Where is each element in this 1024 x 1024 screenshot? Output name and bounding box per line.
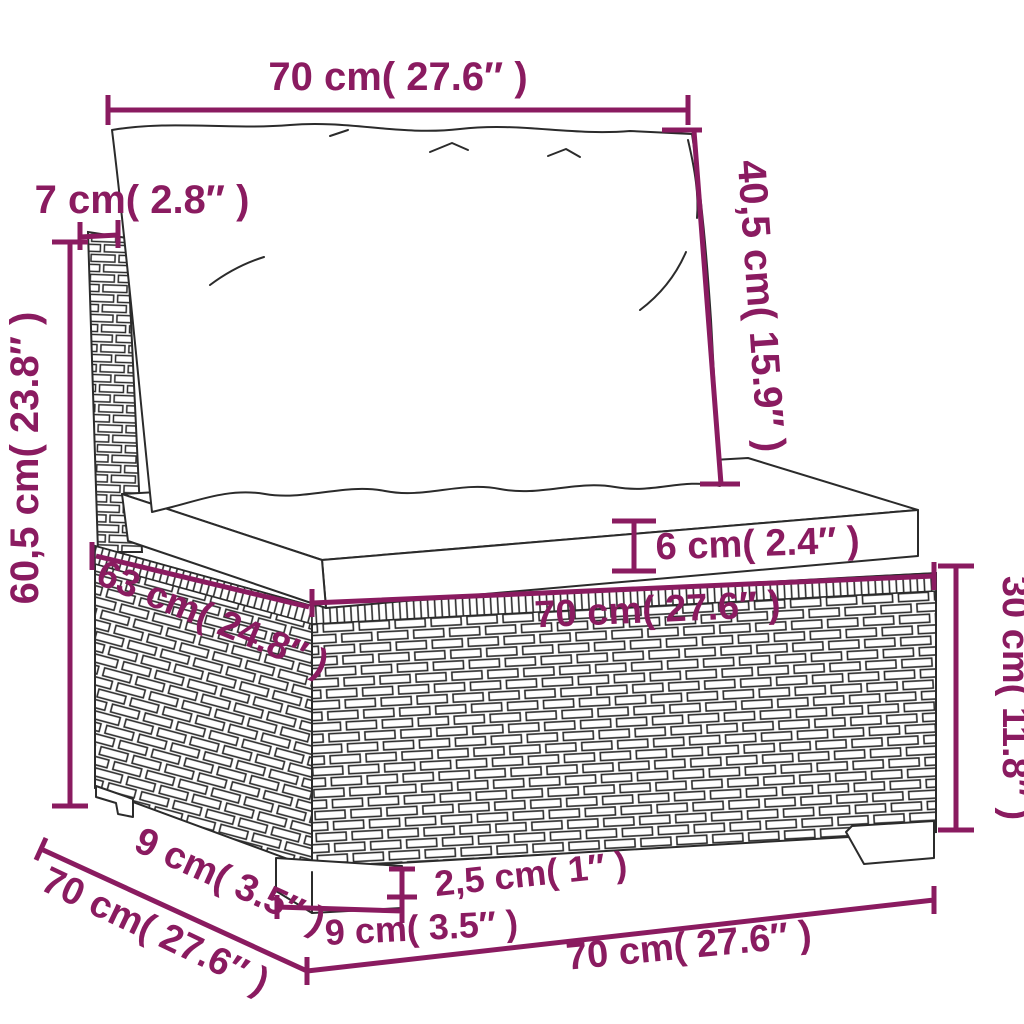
dim-base-height-label: 30 cm( 11.8″ ) xyxy=(994,576,1024,820)
dim-total-height: 60,5 cm( 23.8″ ) xyxy=(3,242,88,806)
dim-back-post-width-label: 7 cm( 2.8″ ) xyxy=(35,178,250,222)
dim-foot-width-label: 9 cm( 3.5″ ) xyxy=(324,902,519,953)
dim-back-cushion-height-label: 40,5 cm( 15.9″ ) xyxy=(729,159,793,454)
sofa-line-art xyxy=(88,124,936,913)
dim-back-width-label: 70 cm( 27.6″ ) xyxy=(268,55,527,99)
dim-base-height-line xyxy=(938,566,974,830)
dim-base-width-label: 70 cm( 27.6″ ) xyxy=(564,913,813,978)
dim-total-height-line xyxy=(52,242,88,806)
dim-back-width-line xyxy=(108,95,688,125)
dim-base-height: 30 cm( 11.8″ ) xyxy=(938,566,1024,830)
dim-cushion-thickness-label: 6 cm( 2.4″ ) xyxy=(655,519,860,568)
dim-total-height-label: 60,5 cm( 23.8″ ) xyxy=(3,312,47,605)
furniture-dimension-diagram: 70 cm( 27.6″ ) 40,5 cm( 15.9″ ) 7 cm( 2.… xyxy=(0,0,1024,1024)
diagram-canvas: 70 cm( 27.6″ ) 40,5 cm( 15.9″ ) 7 cm( 2.… xyxy=(0,0,1024,1024)
foot-front-right xyxy=(846,821,934,864)
dim-back-width: 70 cm( 27.6″ ) xyxy=(108,55,688,125)
